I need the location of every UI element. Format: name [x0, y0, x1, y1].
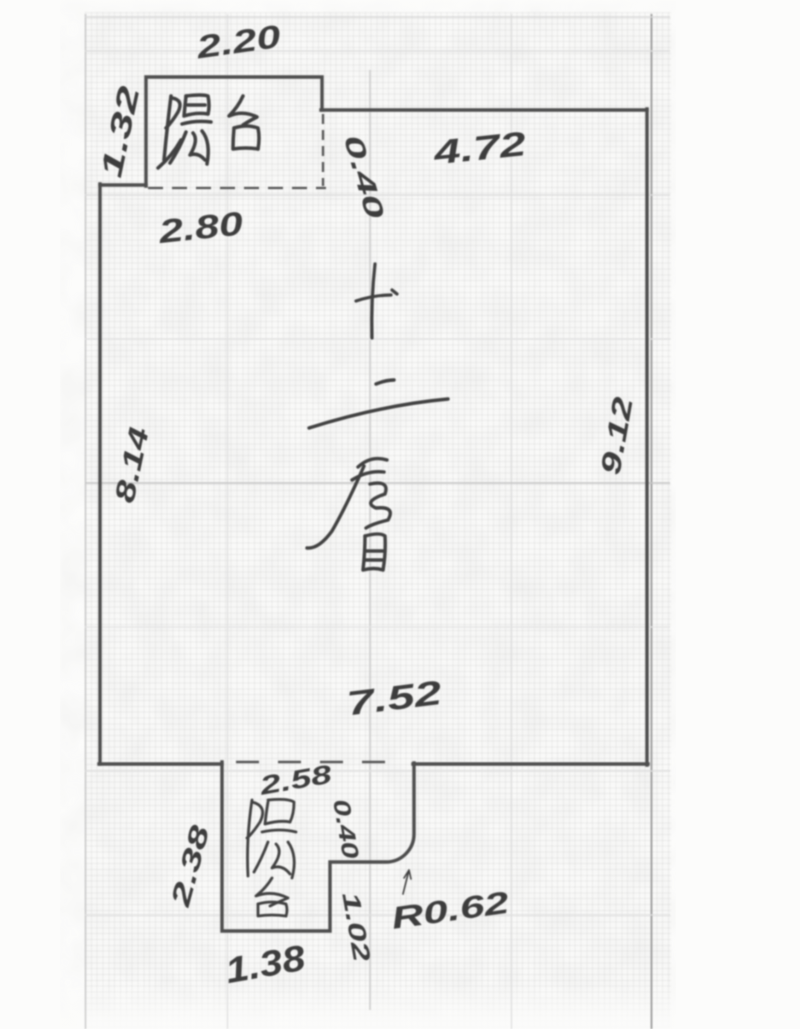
svg-text:2.80: 2.80	[156, 204, 246, 250]
svg-text:2.58: 2.58	[256, 759, 334, 801]
svg-text:R0.62: R0.62	[389, 885, 511, 936]
svg-text:8.14: 8.14	[109, 424, 155, 505]
svg-text:1.38: 1.38	[222, 937, 308, 991]
svg-text:2.38: 2.38	[165, 822, 216, 910]
svg-text:9.12: 9.12	[595, 394, 639, 477]
svg-text:1.32: 1.32	[95, 83, 147, 180]
svg-text:2.20: 2.20	[193, 18, 283, 66]
svg-text:0.40: 0.40	[328, 797, 364, 861]
svg-text:0.40: 0.40	[338, 131, 391, 223]
svg-text:7.52: 7.52	[345, 674, 444, 723]
svg-text:4.72: 4.72	[431, 125, 528, 173]
